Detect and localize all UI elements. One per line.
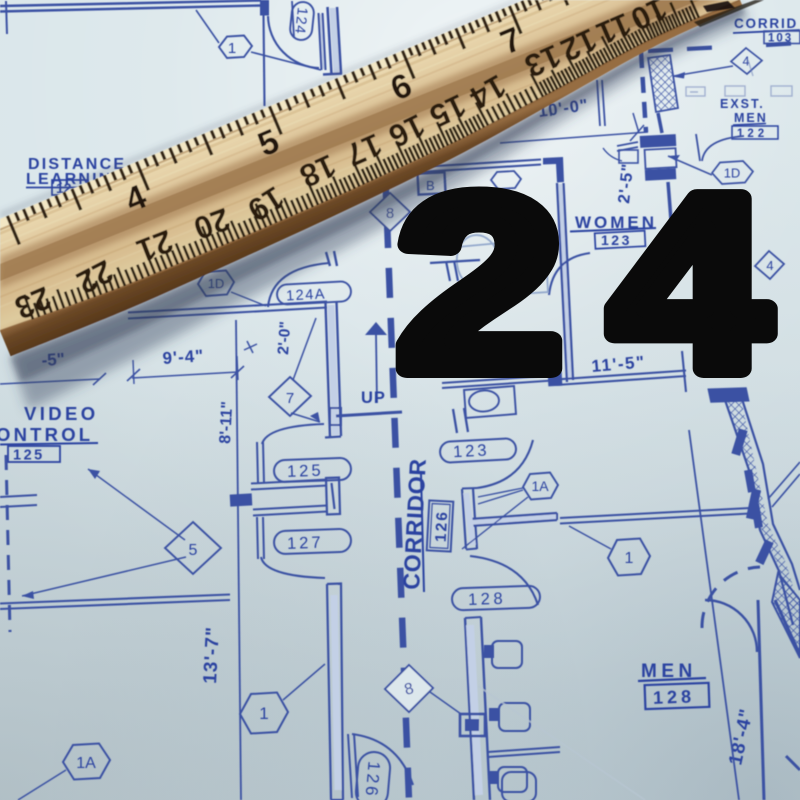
- svg-text:125: 125: [13, 448, 45, 464]
- svg-text:1A: 1A: [76, 755, 96, 772]
- svg-text:128: 128: [468, 590, 507, 609]
- svg-text:128: 128: [653, 686, 696, 707]
- svg-text:1: 1: [228, 40, 236, 57]
- svg-text:4: 4: [610, 146, 770, 422]
- svg-text:127: 127: [287, 534, 324, 553]
- svg-text:126: 126: [433, 510, 452, 543]
- svg-text:EXST.: EXST.: [720, 97, 765, 111]
- svg-text:123: 123: [453, 441, 490, 461]
- svg-text:124A: 124A: [286, 286, 327, 304]
- svg-text:13'-7": 13'-7": [200, 626, 224, 685]
- svg-text:5: 5: [189, 542, 198, 559]
- svg-text:9'-4": 9'-4": [162, 346, 205, 368]
- svg-text:122: 122: [737, 128, 768, 140]
- svg-text:1: 1: [259, 704, 268, 723]
- svg-text:7: 7: [286, 390, 294, 407]
- svg-text:124: 124: [291, 6, 310, 35]
- svg-text:UP: UP: [361, 389, 386, 407]
- svg-text:8'-11": 8'-11": [217, 401, 236, 444]
- svg-text:ONTROL: ONTROL: [0, 424, 93, 445]
- svg-text:1: 1: [625, 550, 634, 567]
- svg-text:125: 125: [287, 462, 324, 481]
- svg-text:1A: 1A: [531, 478, 549, 494]
- svg-text:2'-0": 2'-0": [275, 321, 294, 356]
- svg-text:126: 126: [361, 761, 383, 800]
- svg-text:2: 2: [397, 146, 563, 422]
